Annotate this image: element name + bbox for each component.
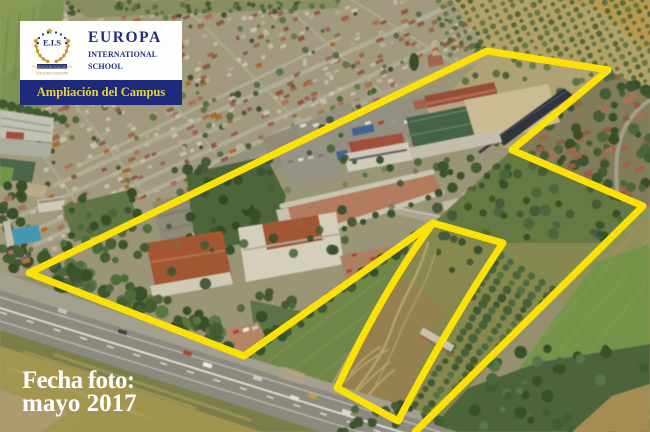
svg-text:COLEGIO EUROPA: COLEGIO EUROPA [36,72,69,76]
svg-text:E.I.S: E.I.S [43,38,61,48]
svg-text:FUNDACION EDUCATIVA: FUNDACION EDUCATIVA [32,65,73,69]
